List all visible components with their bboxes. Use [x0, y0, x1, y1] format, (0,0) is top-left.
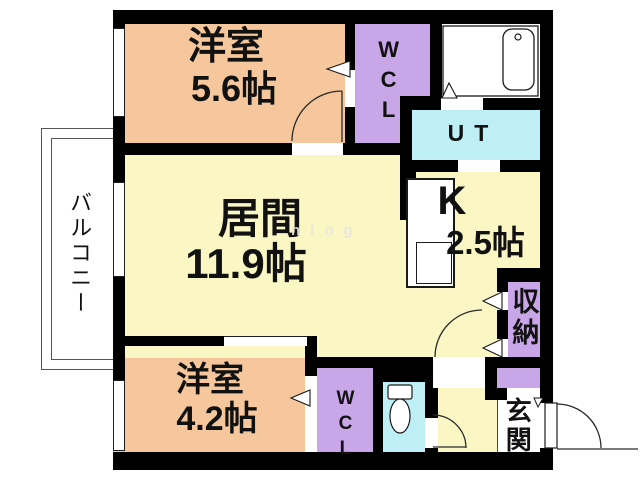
- label-storage: 収納: [509, 287, 537, 349]
- label-balcony: バルコニー: [68, 191, 91, 316]
- label-entrance: 玄関: [503, 397, 530, 455]
- label-utility: UT: [413, 121, 533, 145]
- label-bedroom-bottom: 洋室: [100, 363, 320, 399]
- toilet-icon: [388, 385, 412, 433]
- entrance-door-leaf: [545, 403, 557, 448]
- door-triangle-storage-lower: [483, 339, 502, 357]
- label-wcl-top: WCL: [377, 37, 400, 127]
- door-triangle-storage-upper: [483, 292, 502, 310]
- floor-plan: 洋室 5.6帖 居間 11.9帖 洋室 4.2帖 K 2.5帖 UT WCL W…: [0, 0, 640, 480]
- door-triangle-bath: [442, 83, 457, 98]
- door-swing-arc-living-hallway: [435, 310, 482, 357]
- watermark-text: niog: [291, 222, 363, 239]
- label-bedroom-top: 洋室: [116, 28, 336, 68]
- bathtub-icon: [443, 26, 538, 96]
- label-bedroom-bottom-area: 4.2帖: [107, 402, 327, 438]
- label-kitchen-area: 2.5帖: [398, 226, 573, 261]
- label-bedroom-top-area: 5.6帖: [124, 70, 344, 108]
- label-kitchen: K: [412, 180, 492, 222]
- door-swing-arc-toilet: [433, 415, 466, 448]
- door-swing-arc-entrance: [557, 404, 601, 448]
- entrance-hinge-notch: [534, 398, 543, 407]
- label-wcl-bottom: WCL: [335, 388, 355, 463]
- label-living-area: 11.9帖: [136, 242, 356, 286]
